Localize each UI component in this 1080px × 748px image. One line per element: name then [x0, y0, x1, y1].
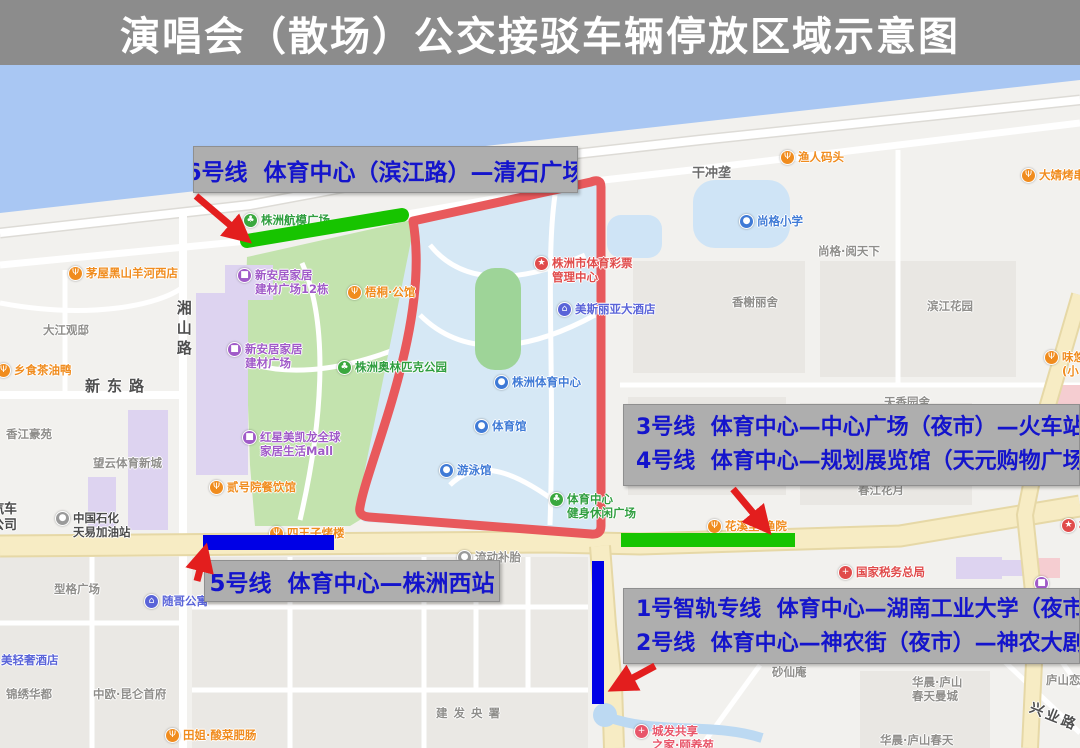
poi-xinanju-12dong-icon: ■	[237, 268, 252, 283]
label-xiangshan-road: 湘山路	[174, 300, 193, 360]
poi-zhuzhou-sports-center: ●株洲体育中心	[494, 375, 581, 390]
poi-swimming-pool-icon: ●	[439, 463, 454, 478]
label-xindong-road: 新东路	[85, 377, 151, 396]
poi-national-tax-bureau-label: 国家税务总局	[856, 565, 925, 579]
poi-gymnasium: ●体育馆	[474, 419, 527, 434]
poi-wutong-mansion-icon: Ψ	[347, 285, 362, 300]
poi-fisherman-wharf-icon: Ψ	[780, 150, 795, 165]
annotation-line1-2: 1号智轨专线 体育中心—湖南工业大学（夜市） 2号线 体育中心—神农街（夜市）—…	[623, 588, 1080, 664]
poi-star-right-edge-icon: ★	[1061, 518, 1076, 533]
label-xingge-plaza-label: 型格广场	[54, 582, 100, 596]
poi-swimming-pool: ●游泳馆	[439, 463, 492, 478]
poi-xinanju-12dong-label: 新安居家居建材广场12栋	[255, 268, 329, 297]
poi-weiyou-snack: Ψ味悠(小	[1044, 350, 1080, 379]
poi-huaxili-yuyuan-icon: Ψ	[707, 519, 722, 534]
poi-macalline-mall: ■红星美凯龙全球家居生活Mall	[242, 430, 341, 459]
label-dajiang-guandi-label: 大江观邸	[43, 323, 89, 337]
poi-shangge-primary-school-icon: ●	[739, 214, 754, 229]
poi-xinanju-12dong: ■新安居家居建材广场12栋	[237, 268, 329, 297]
poi-shangge-primary-school: ●尚格小学	[739, 214, 803, 229]
label-huachen-lushan-mancheng: 华晨·庐山春天曼城	[912, 675, 962, 704]
screenshot-root: 演唱会（散场）公交接驳车辆停放区域示意图	[0, 0, 1080, 748]
annotation-line6: 6号线 体育中心（滨江路）—清石广场	[193, 146, 578, 193]
poi-weiyou-snack-icon: Ψ	[1044, 350, 1059, 365]
poi-dajing-bbq-icon: Ψ	[1021, 168, 1036, 183]
poi-olympic-park-label: 株洲奥林匹克公园	[355, 360, 447, 374]
poi-tianjie-restaurant-label: 田姐·酸菜肥肠	[183, 728, 256, 742]
label-shaxian-an-label: 砂仙庵	[772, 665, 807, 679]
poi-aeromodel-plaza-label: 株洲航模广场	[261, 213, 330, 227]
poi-suige-apartment-icon: ⌂	[144, 594, 159, 609]
label-wangyun-sports-town-label: 望云体育新城	[93, 456, 162, 470]
poi-meisiliya-hotel-label: 美斯丽亚大酒店	[575, 302, 656, 316]
label-xiangxie-lishe-label: 香榭丽舍	[732, 295, 778, 309]
poi-aeromodel-plaza-icon: ♣	[243, 213, 258, 228]
map-canvas: ♣株洲航模广场Ψ茅屋黑山羊河西店Ψ乡食茶油鸭大江观邸湘山路新东路■新安居家居建材…	[0, 65, 1080, 748]
poi-dajing-bbq-label: 大婧烤串	[1039, 168, 1080, 182]
poi-siwangzi-restaurant-icon: Ψ	[269, 526, 284, 541]
poi-suige-apartment-label: 随哥公寓	[162, 594, 208, 608]
poi-maowu-blackgoat-restaurant-icon: Ψ	[68, 266, 83, 281]
annotation-line5: 5号线 体育中心—株洲西站	[204, 560, 500, 602]
poi-erhaoyuan-restaurant-icon: Ψ	[209, 480, 224, 495]
label-auto-company-partial: 汽车公司	[0, 502, 17, 535]
poi-suige-apartment: ⌂随哥公寓	[144, 594, 208, 609]
poi-olympic-park-icon: ♣	[337, 360, 352, 375]
poi-erhaoyuan-restaurant: Ψ贰号院餐饮馆	[209, 480, 296, 495]
poi-maowu-blackgoat-restaurant: Ψ茅屋黑山羊河西店	[68, 266, 178, 281]
label-wangyun-sports-town: 望云体育新城	[93, 456, 162, 470]
poi-national-tax-bureau: +国家税务总局	[838, 565, 925, 580]
poi-sports-lottery-center-label: 株洲市体育彩票管理中心	[552, 256, 633, 285]
label-huachen-lushan-chuntian-label: 华晨·庐山春天	[880, 733, 953, 747]
label-xiangjiang-haoyuan: 香江豪苑	[6, 427, 52, 441]
annotation-line2-text: 2号线 体育中心—神农街（夜市）—神农大剧院	[624, 627, 1079, 661]
poi-macalline-mall-icon: ■	[242, 430, 257, 445]
poi-huaxili-yuyuan: Ψ花溪里.渔院	[707, 519, 787, 534]
poi-macalline-mall-label: 红星美凯龙全球家居生活Mall	[260, 430, 341, 459]
label-shangge-yuetianxia: 尚格·阅天下	[818, 244, 880, 258]
label-ganchonglong-label: 干冲垄	[692, 166, 731, 182]
poi-gymnasium-label: 体育馆	[492, 419, 527, 433]
page-title-bar: 演唱会（散场）公交接驳车辆停放区域示意图	[0, 0, 1080, 65]
poi-xinanju: ■新安居家居建材广场	[227, 342, 303, 371]
label-meiqingshe-hotel-label: 美轻奢酒店	[1, 653, 59, 667]
poi-chengfa-nursing-home-label: 城发共享之家·颐养苑	[652, 724, 714, 748]
label-xiangshan-road-label: 湘山路	[174, 300, 193, 360]
poi-sports-lottery-center: ★株洲市体育彩票管理中心	[534, 256, 633, 285]
label-xiangxie-lishe: 香榭丽舍	[732, 295, 778, 309]
poi-star-right-edge: ★株	[1061, 518, 1080, 533]
poi-huaxili-yuyuan-label: 花溪里.渔院	[725, 519, 787, 533]
label-dajiang-guandi: 大江观邸	[43, 323, 89, 337]
poi-sinopec-gas-station: ●中国石化天易加油站	[55, 511, 131, 540]
poi-xiangshi-tea-oil-duck-icon: Ψ	[0, 363, 11, 378]
poi-chengfa-nursing-home: +城发共享之家·颐养苑	[634, 724, 714, 748]
poi-aeromodel-plaza: ♣株洲航模广场	[243, 213, 330, 228]
poi-fisherman-wharf-label: 渔人码头	[798, 150, 844, 164]
poi-sports-lottery-center-icon: ★	[534, 256, 549, 271]
label-zhongou-kunlun: 中欧·昆仑首府	[93, 687, 166, 701]
poi-swimming-pool-label: 游泳馆	[457, 463, 492, 477]
annotation-line5-text: 5号线 体育中心—株洲西站	[209, 564, 494, 598]
poi-weiyou-snack-label: 味悠(小	[1062, 350, 1080, 379]
poi-wutong-mansion-label: 梧桐·公馆	[365, 285, 415, 299]
poi-erhaoyuan-restaurant-label: 贰号院餐饮馆	[227, 480, 296, 494]
poi-meisiliya-hotel: ⌂美斯丽亚大酒店	[557, 302, 656, 317]
label-huachen-lushan-mancheng-label: 华晨·庐山春天曼城	[912, 675, 962, 704]
label-auto-company-partial-label: 汽车公司	[0, 502, 17, 535]
label-huachen-lushan-chuntian: 华晨·庐山春天	[880, 733, 953, 747]
poi-fitness-leisure-plaza-icon: ♣	[549, 492, 564, 507]
label-xingye-road: 兴业路	[1027, 700, 1080, 735]
page-title: 演唱会（散场）公交接驳车辆停放区域示意图	[120, 4, 960, 62]
poi-zhuzhou-sports-center-label: 株洲体育中心	[512, 375, 581, 389]
label-lushan-lian-label: 庐山恋	[1046, 673, 1080, 687]
poi-sinopec-gas-station-icon: ●	[55, 511, 70, 526]
poi-tianjie-restaurant-icon: Ψ	[165, 728, 180, 743]
annotation-line4-text: 4号线 体育中心—规划展览馆（天元购物广场）	[624, 445, 1079, 479]
poi-xinanju-label: 新安居家居建材广场	[245, 342, 303, 371]
label-xindong-road-label: 新东路	[85, 377, 151, 396]
label-jinxiu-huadu: 锦绣华都	[6, 687, 52, 701]
label-lushan-lian: 庐山恋	[1046, 673, 1080, 687]
poi-xiangshi-tea-oil-duck-label: 乡食茶油鸭	[14, 363, 72, 377]
poi-chengfa-nursing-home-icon: +	[634, 724, 649, 739]
poi-fisherman-wharf: Ψ渔人码头	[780, 150, 844, 165]
annotation-line3-4: 3号线 体育中心—中心广场（夜市）—火车站 4号线 体育中心—规划展览馆（天元购…	[623, 404, 1080, 486]
poi-xinanju-icon: ■	[227, 342, 242, 357]
poi-shangge-primary-school-label: 尚格小学	[757, 214, 803, 228]
label-jianfa-yangshu-label: 建发央署	[436, 706, 506, 720]
poi-olympic-park: ♣株洲奥林匹克公园	[337, 360, 447, 375]
poi-xiangshi-tea-oil-duck: Ψ乡食茶油鸭	[0, 363, 72, 378]
poi-fitness-leisure-plaza-label: 体育中心健身休闲广场	[567, 492, 636, 521]
label-zhongou-kunlun-label: 中欧·昆仑首府	[93, 687, 166, 701]
label-xiangjiang-haoyuan-label: 香江豪苑	[6, 427, 52, 441]
label-shangge-yuetianxia-label: 尚格·阅天下	[818, 244, 880, 258]
label-shaxian-an: 砂仙庵	[772, 665, 807, 679]
poi-gymnasium-icon: ●	[474, 419, 489, 434]
label-meiqingshe-hotel: 美轻奢酒店	[1, 653, 59, 667]
label-jinxiu-huadu-label: 锦绣华都	[6, 687, 52, 701]
poi-fitness-leisure-plaza: ♣体育中心健身休闲广场	[549, 492, 636, 521]
poi-national-tax-bureau-icon: +	[838, 565, 853, 580]
poi-siwangzi-restaurant-label: 四王子烤楼	[287, 526, 345, 540]
annotation-line3-text: 3号线 体育中心—中心广场（夜市）—火车站	[624, 411, 1079, 445]
poi-maowu-blackgoat-restaurant-label: 茅屋黑山羊河西店	[86, 266, 178, 280]
poi-tianjie-restaurant: Ψ田姐·酸菜肥肠	[165, 728, 256, 743]
label-xingge-plaza: 型格广场	[54, 582, 100, 596]
label-xingye-road-label: 兴业路	[1027, 700, 1080, 735]
poi-dajing-bbq: Ψ大婧烤串	[1021, 168, 1080, 183]
poi-sinopec-gas-station-label: 中国石化天易加油站	[73, 511, 131, 540]
annotation-line6-text: 6号线 体育中心（滨江路）—清石广场	[193, 153, 578, 187]
poi-zhuzhou-sports-center-icon: ●	[494, 375, 509, 390]
poi-meisiliya-hotel-icon: ⌂	[557, 302, 572, 317]
annotation-line1-text: 1号智轨专线 体育中心—湖南工业大学（夜市）	[624, 593, 1079, 627]
label-jianfa-yangshu: 建发央署	[436, 706, 506, 720]
label-binjiang-garden: 滨江花园	[927, 299, 973, 313]
label-ganchonglong: 干冲垄	[692, 166, 731, 182]
label-binjiang-garden-label: 滨江花园	[927, 299, 973, 313]
poi-wutong-mansion: Ψ梧桐·公馆	[347, 285, 415, 300]
poi-siwangzi-restaurant: Ψ四王子烤楼	[269, 526, 345, 541]
